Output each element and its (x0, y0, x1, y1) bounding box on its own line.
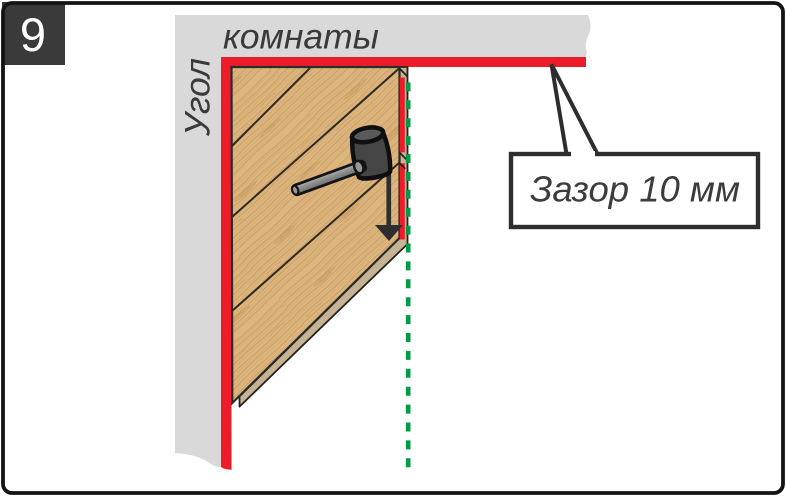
svg-text:комнаты: комнаты (223, 17, 379, 57)
svg-text:Угол: Угол (178, 58, 218, 137)
svg-text:Зазор 10 мм: Зазор 10 мм (530, 169, 740, 210)
svg-text:9: 9 (20, 8, 46, 61)
